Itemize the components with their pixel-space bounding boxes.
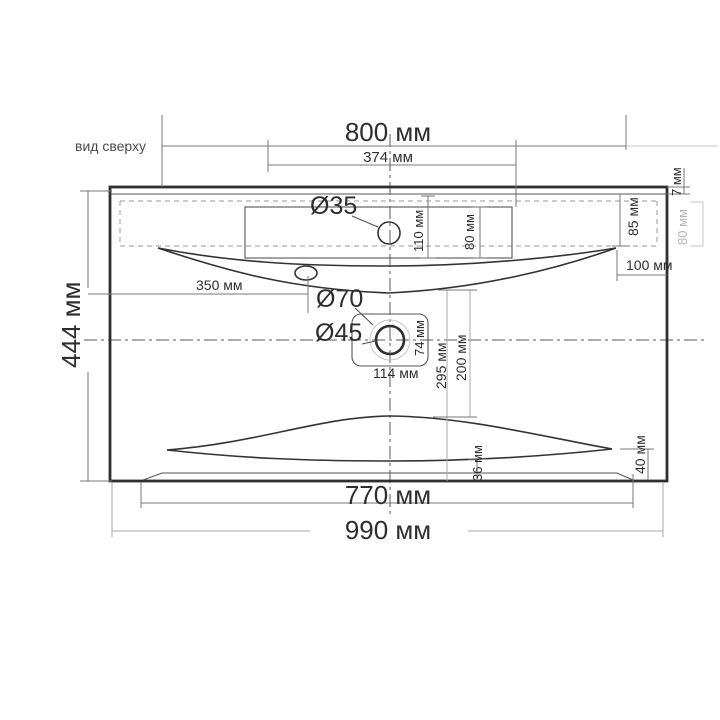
dim-side-ledge-label: 80 мм [675,209,690,245]
dim-front-right-gap-label: 40 мм [632,435,648,474]
dim-top-width-label: 800 мм [345,117,431,147]
hidden-recess-dashed-rect [120,201,657,246]
dim-overflow-offset-label: 350 мм [196,277,243,293]
dim-faucet-diameter-label: Ø35 [310,192,357,220]
drain-hole-leader [362,341,376,344]
dim-drain-hole-dia-label: Ø45 [315,319,362,347]
dim-overall-depth-label: 444 мм [56,282,86,368]
dim-drain-to-front-label: 200 мм [453,335,469,382]
drawing-canvas: 800 мм 374 мм вид сверху Ø35 110 мм 80 м… [0,0,720,720]
dim-faucet-offset-label: 110 мм [411,210,426,252]
view-label: вид сверху [75,138,146,154]
dim-bowl-to-front-label: 295 мм [433,343,449,390]
dim-top-width [162,115,718,187]
dim-back-ledge-label: 85 мм [625,197,641,236]
dim-faucet-span-label: 374 мм [363,149,413,166]
front-apron-bevel [143,473,633,480]
dim-bowl-side-gap-label: 100 мм [626,257,673,273]
dim-deck-depth-label: 80 мм [462,214,477,250]
sink-outline [110,187,667,481]
washbasin-dimension-drawing: 800 мм 374 мм вид сверху Ø35 110 мм 80 м… [0,0,720,720]
dim-drain-recess-height-label: 74 мм [412,320,427,356]
dim-drain-recess-dia-label: Ø70 [316,285,363,313]
bowl-back-edge-curve [158,248,616,266]
dim-drain-recess-width-label: 114 мм [373,365,418,381]
dim-bottom-face-width-label: 770 мм [345,480,431,510]
dim-side-ledge [690,202,703,246]
dim-overall-width-label: 990 мм [345,515,431,545]
dim-back-rim-label: 7 мм [669,167,684,196]
overflow-hole [295,266,317,280]
faucet-hole [378,222,400,244]
dim-front-lip-label: 36 мм [470,445,485,481]
